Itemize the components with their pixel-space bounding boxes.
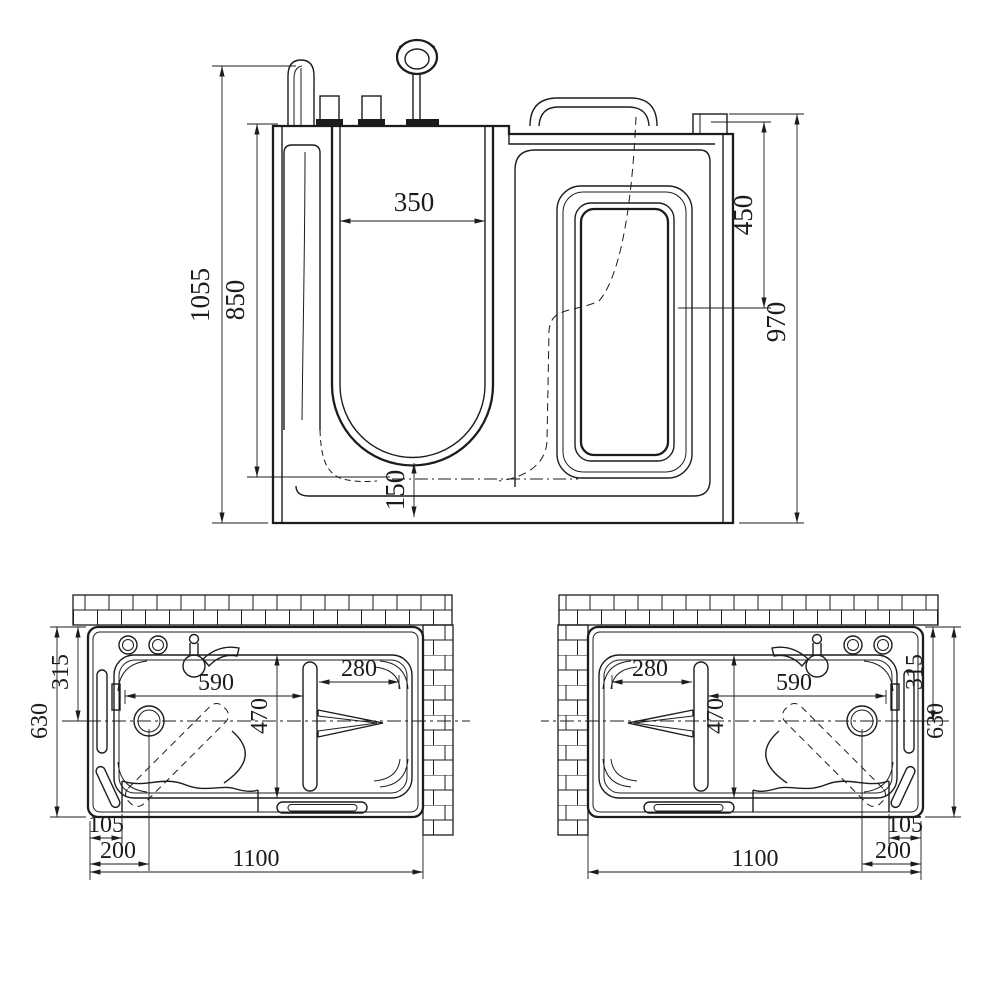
plan-left-dim-texts: 630 315 590 470 280 105 200 1100 — [27, 654, 377, 872]
technical-drawing-page: { "drawing": { "subject": "walk-in-batht… — [0, 0, 1000, 1000]
dim-text-590-right: 590 — [776, 670, 812, 696]
left-panel-slot — [284, 145, 377, 482]
dim-body-height: 970 — [729, 114, 804, 523]
spout-arch — [288, 60, 314, 126]
dim-text-150: 150 — [380, 470, 410, 511]
dim-opening-width: 350 — [340, 187, 485, 221]
plan-right-dim-texts: 630 315 590 470 280 105 200 1100 — [632, 654, 949, 872]
hidden-lines — [392, 117, 636, 481]
dim-text-280-right: 280 — [632, 656, 668, 682]
dim-text-200-left: 200 — [100, 838, 136, 864]
plan-views: 630 315 590 470 280 105 200 1100 630 315… — [0, 560, 1000, 1000]
dim-text-450: 450 — [728, 195, 758, 236]
dim-text-280-left: 280 — [341, 656, 377, 682]
dim-text-350: 350 — [394, 187, 435, 217]
dim-text-1100-right: 1100 — [731, 846, 778, 872]
dim-text-630-right: 630 — [923, 703, 949, 739]
front-elevation-view: 1055 850 350 450 970 150 — [0, 0, 1000, 560]
dim-text-105-right: 105 — [887, 812, 923, 838]
dim-text-850: 850 — [220, 280, 250, 321]
walkin-opening — [332, 126, 493, 466]
diverter-knobs — [316, 96, 385, 126]
dim-text-315-right: 315 — [902, 654, 928, 690]
rim-block — [693, 114, 727, 134]
dim-text-1055: 1055 — [185, 268, 215, 322]
shower-head — [397, 40, 439, 126]
door-window — [557, 186, 692, 478]
dim-text-630-left: 630 — [27, 703, 53, 739]
dim-text-200-right: 200 — [875, 838, 911, 864]
dim-text-590-left: 590 — [198, 670, 234, 696]
dim-text-105-left: 105 — [88, 812, 124, 838]
dim-text-470-right: 470 — [703, 698, 729, 734]
dim-text-970: 970 — [761, 302, 791, 343]
dim-well-depth: 150 — [380, 463, 414, 517]
dim-text-470-left: 470 — [247, 698, 273, 734]
dim-text-315-left: 315 — [48, 654, 74, 690]
dim-text-1100-left: 1100 — [232, 846, 279, 872]
grab-handle — [530, 98, 657, 126]
